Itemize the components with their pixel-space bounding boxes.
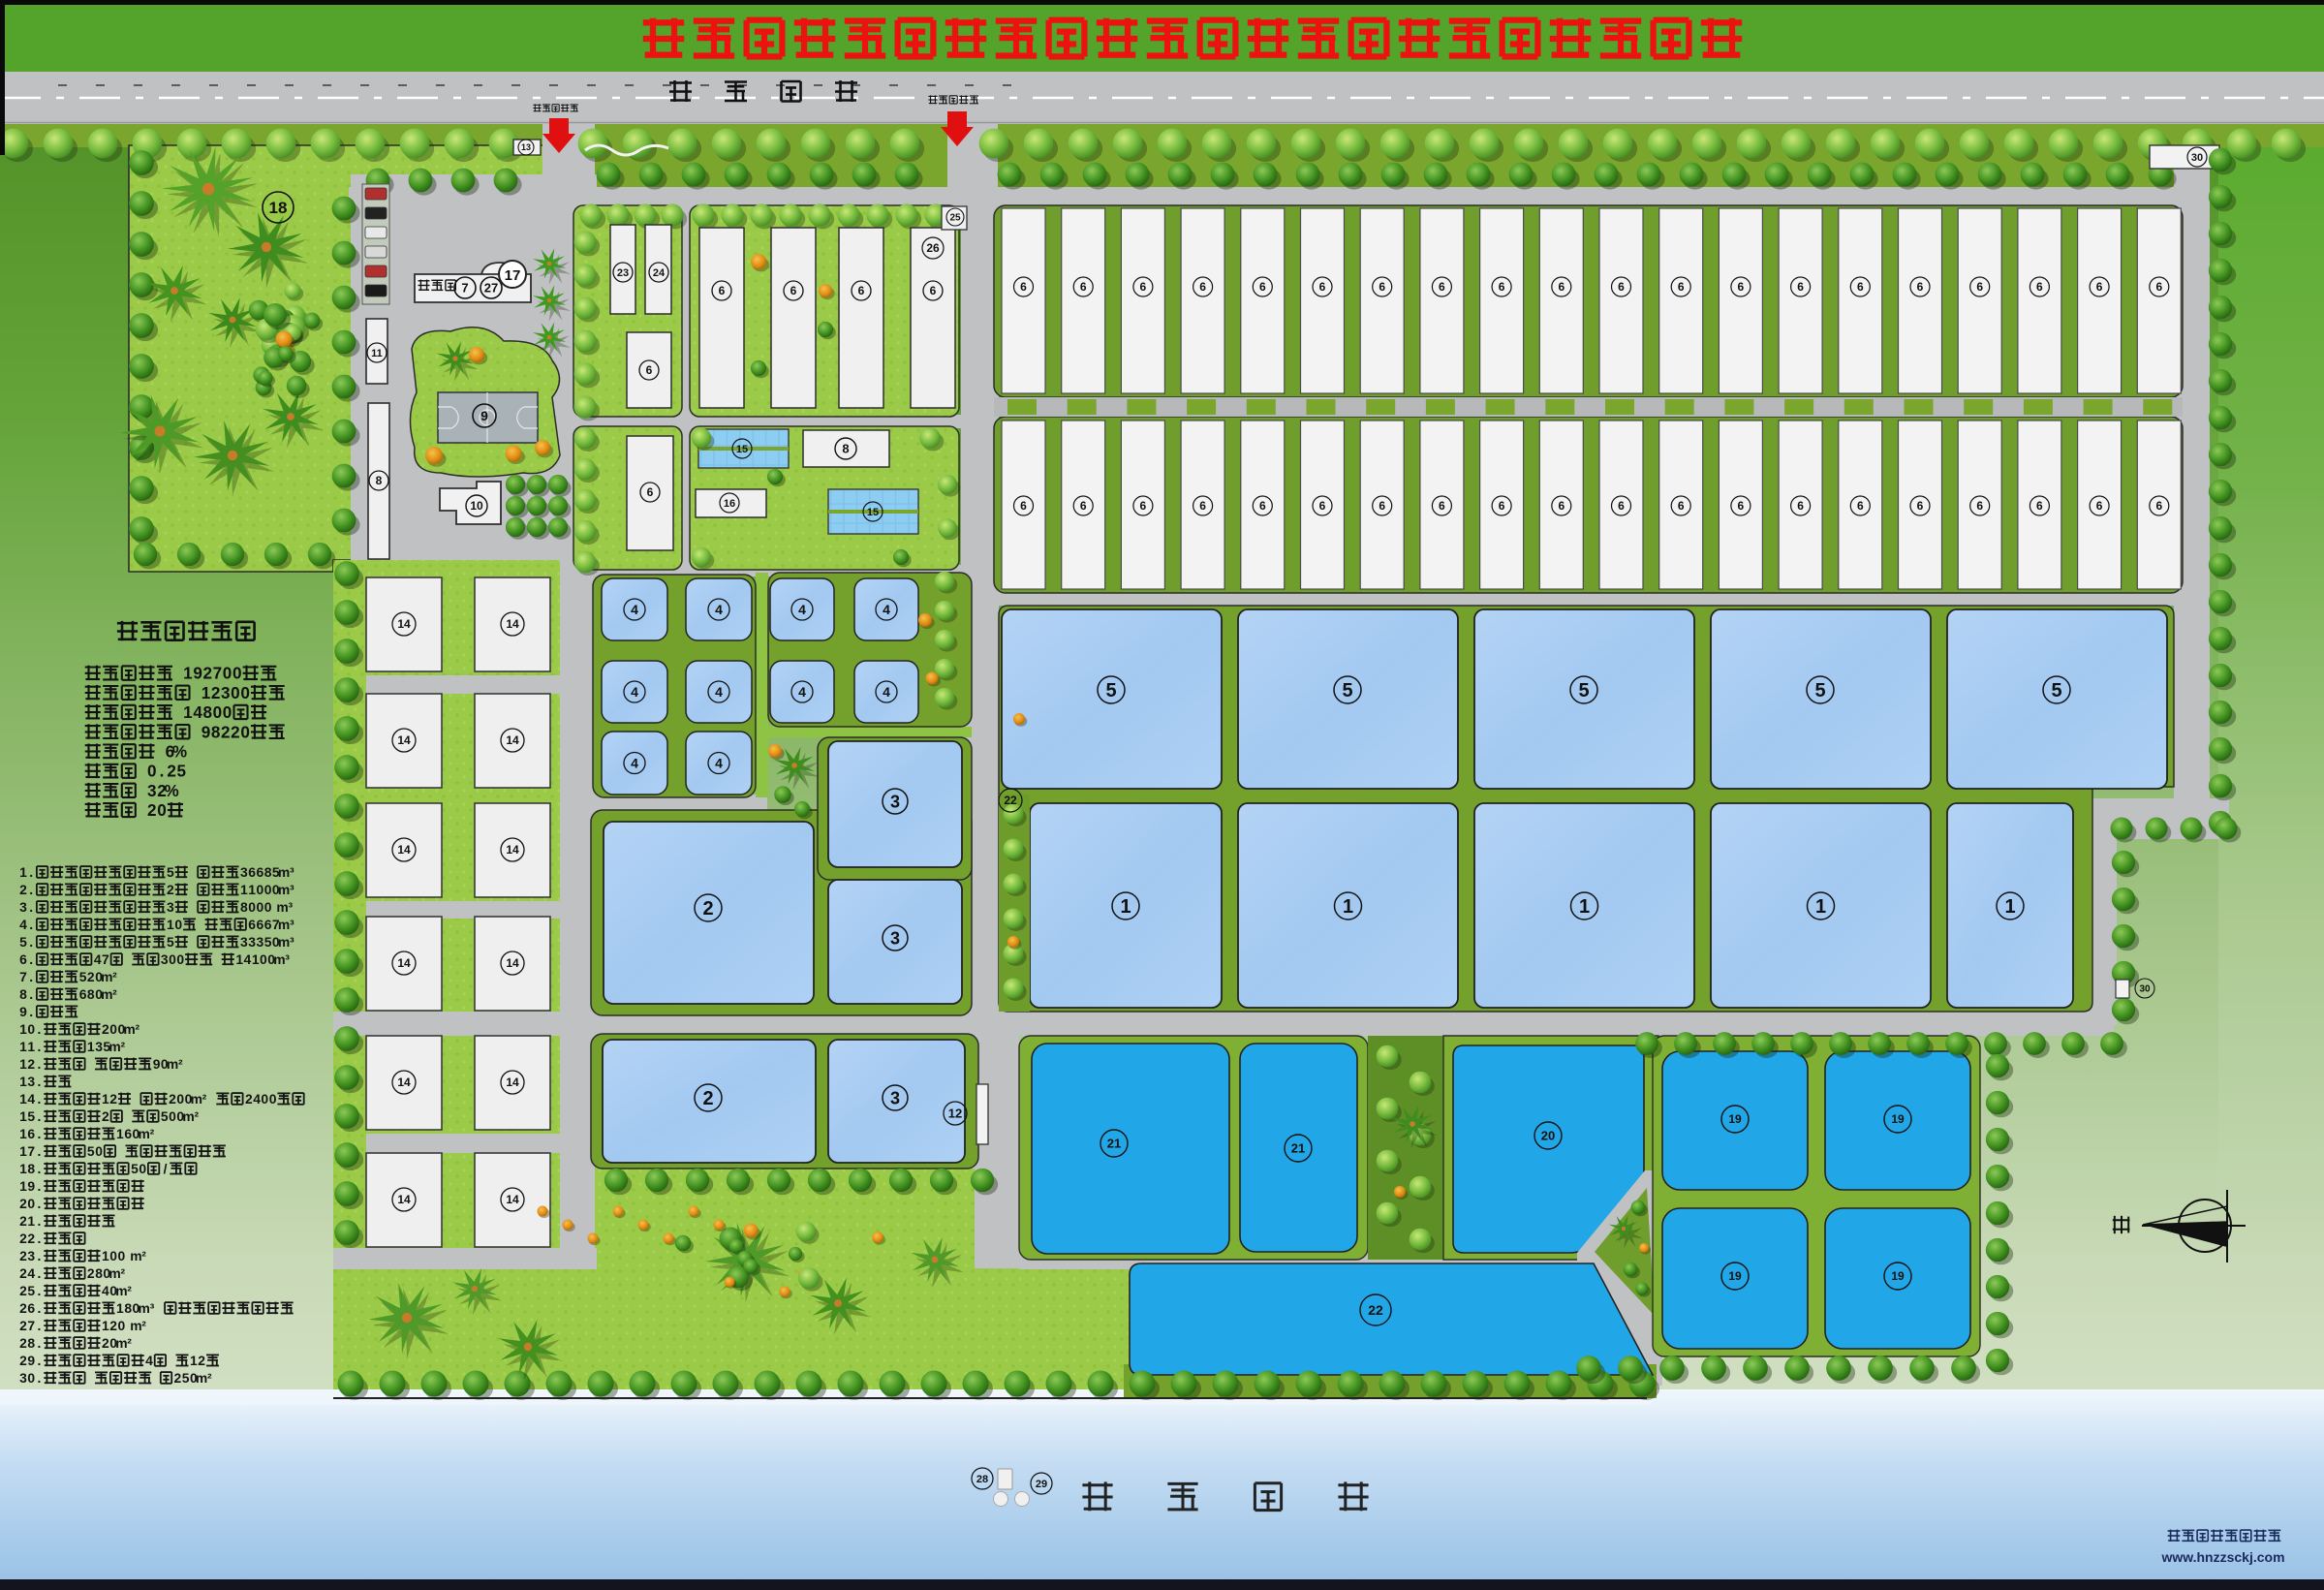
svg-text:%: % (172, 743, 187, 762)
svg-text:5: 5 (87, 1143, 95, 1159)
svg-text:.: . (29, 917, 33, 932)
svg-text:.: . (37, 1074, 41, 1089)
svg-text:5: 5 (1342, 680, 1352, 701)
svg-text:1: 1 (27, 1039, 35, 1054)
svg-text:19: 19 (1728, 1112, 1742, 1126)
svg-text:8: 8 (124, 1300, 132, 1316)
svg-text:6: 6 (1797, 280, 1804, 294)
svg-text:6: 6 (1618, 280, 1625, 294)
svg-text:0: 0 (95, 1143, 103, 1159)
svg-text:0: 0 (257, 899, 264, 915)
svg-text:2: 2 (202, 665, 212, 683)
svg-text:6: 6 (257, 864, 264, 880)
svg-text:23: 23 (617, 267, 629, 279)
svg-text:4: 4 (193, 703, 202, 722)
svg-text:6: 6 (1976, 499, 1983, 513)
svg-text:7: 7 (461, 281, 468, 296)
svg-text:0: 0 (27, 1370, 35, 1386)
svg-text:5: 5 (167, 934, 174, 950)
svg-text:3: 3 (95, 1039, 103, 1054)
svg-text:6: 6 (646, 363, 653, 377)
svg-text:6: 6 (1020, 280, 1027, 294)
svg-text:8: 8 (27, 1335, 35, 1351)
svg-text:2: 2 (102, 1021, 109, 1037)
svg-text:14: 14 (506, 1076, 519, 1089)
svg-text:²: ² (112, 986, 117, 1002)
svg-text:³: ³ (290, 882, 294, 897)
svg-text:²: ² (178, 1056, 183, 1072)
svg-text:²: ² (135, 1021, 139, 1037)
svg-text:25: 25 (949, 213, 961, 224)
svg-text:2: 2 (169, 1091, 176, 1107)
svg-text:5: 5 (1814, 680, 1825, 701)
svg-text:2: 2 (19, 1248, 27, 1263)
svg-text:4: 4 (27, 1265, 35, 1281)
svg-text:1: 1 (102, 1248, 109, 1263)
svg-text:m: m (101, 969, 112, 984)
svg-text:1: 1 (190, 1353, 198, 1368)
svg-text:28: 28 (976, 1474, 988, 1485)
svg-text:2: 2 (167, 882, 174, 897)
svg-text:6: 6 (1678, 280, 1685, 294)
svg-text:3: 3 (27, 1248, 35, 1263)
svg-text:2: 2 (19, 882, 27, 897)
svg-text:4: 4 (145, 1353, 153, 1368)
svg-text:4: 4 (94, 951, 102, 967)
svg-text:0: 0 (169, 1108, 176, 1124)
svg-text:3: 3 (890, 1088, 900, 1107)
svg-text:2: 2 (19, 1283, 27, 1298)
svg-text:8: 8 (376, 474, 383, 487)
svg-text:2: 2 (27, 1056, 35, 1072)
svg-text:3: 3 (248, 934, 256, 950)
svg-text:15: 15 (736, 444, 748, 455)
svg-text:4: 4 (798, 602, 806, 617)
svg-text:1: 1 (183, 703, 193, 722)
svg-text:4: 4 (102, 1283, 109, 1298)
svg-text:8: 8 (842, 442, 849, 456)
svg-text:.: . (37, 1283, 41, 1298)
svg-text:12: 12 (948, 1107, 962, 1121)
svg-text:14: 14 (397, 956, 411, 970)
svg-text:m: m (115, 1335, 127, 1351)
svg-text:4: 4 (883, 684, 890, 700)
svg-text:6: 6 (1379, 499, 1385, 513)
svg-text:³: ³ (285, 951, 290, 967)
svg-text:m: m (182, 1108, 194, 1124)
svg-text:0: 0 (176, 951, 184, 967)
svg-text:6: 6 (1558, 280, 1565, 294)
svg-text:.: . (37, 1213, 41, 1229)
svg-text:m: m (115, 1283, 127, 1298)
svg-text:9: 9 (27, 1178, 35, 1194)
svg-text:2: 2 (19, 1213, 27, 1229)
svg-text:6: 6 (2036, 499, 2043, 513)
svg-text:6: 6 (647, 485, 654, 499)
svg-text:6: 6 (2155, 499, 2162, 513)
svg-text:²: ² (120, 1265, 125, 1281)
svg-text:29: 29 (1036, 1479, 1047, 1490)
svg-text:m: m (196, 1370, 207, 1386)
svg-text:0: 0 (109, 1021, 117, 1037)
svg-text:14: 14 (506, 843, 519, 857)
svg-text:m: m (139, 1300, 150, 1316)
svg-text:22: 22 (1004, 794, 1017, 807)
svg-text:2: 2 (198, 1353, 205, 1368)
svg-text:0: 0 (213, 703, 223, 722)
svg-text:2: 2 (167, 763, 176, 781)
svg-text:7: 7 (19, 969, 27, 984)
svg-text:14: 14 (506, 617, 519, 631)
svg-text:5: 5 (1105, 680, 1116, 701)
svg-text:2: 2 (221, 723, 231, 741)
svg-text:2: 2 (245, 1091, 253, 1107)
svg-text:.: . (37, 1143, 41, 1159)
svg-text:6: 6 (1199, 280, 1206, 294)
svg-text:m: m (108, 1039, 120, 1054)
svg-text:14: 14 (397, 733, 411, 747)
svg-text:²: ² (112, 969, 117, 984)
svg-text:.: . (37, 1335, 41, 1351)
svg-text:7: 7 (27, 1143, 35, 1159)
svg-text:²: ² (207, 1370, 212, 1386)
svg-text:.: . (29, 986, 33, 1002)
svg-text:2: 2 (19, 1335, 27, 1351)
svg-text:m: m (123, 1021, 135, 1037)
svg-text:6: 6 (1020, 499, 1027, 513)
svg-text:0: 0 (176, 1091, 184, 1107)
svg-text:4: 4 (631, 684, 638, 700)
svg-text:m: m (101, 986, 112, 1002)
svg-text:18: 18 (269, 199, 288, 217)
svg-text:m: m (139, 1126, 150, 1141)
svg-text:0: 0 (109, 1248, 117, 1263)
svg-text:³: ³ (290, 917, 294, 932)
svg-text:8: 8 (87, 986, 95, 1002)
svg-text:0: 0 (261, 1091, 268, 1107)
svg-text:4: 4 (798, 684, 806, 700)
svg-text:15: 15 (867, 507, 879, 518)
svg-text:.: . (160, 763, 165, 781)
svg-text:2: 2 (702, 898, 713, 920)
svg-text:0: 0 (264, 882, 272, 897)
svg-text:²: ² (202, 1091, 207, 1107)
svg-text:13: 13 (521, 142, 531, 152)
svg-text:14: 14 (397, 617, 411, 631)
svg-text:2: 2 (174, 1370, 182, 1386)
svg-text:6: 6 (1618, 499, 1625, 513)
svg-text:1: 1 (27, 1213, 35, 1229)
svg-text:6: 6 (2096, 499, 2103, 513)
svg-text:2: 2 (19, 1196, 27, 1211)
svg-text:5: 5 (131, 1161, 139, 1176)
svg-text:6: 6 (719, 284, 726, 297)
svg-text:/: / (164, 1161, 168, 1176)
svg-text:3: 3 (167, 899, 174, 915)
svg-text:0: 0 (27, 1196, 35, 1211)
svg-text:1: 1 (19, 1039, 27, 1054)
svg-text:5: 5 (264, 934, 272, 950)
svg-text:8: 8 (19, 986, 27, 1002)
svg-text:0: 0 (118, 1318, 126, 1333)
svg-text:0: 0 (139, 1161, 146, 1176)
svg-text:2: 2 (19, 1300, 27, 1316)
svg-text:22: 22 (1368, 1302, 1383, 1318)
svg-text:7: 7 (213, 665, 223, 683)
svg-text:1: 1 (19, 1126, 27, 1141)
svg-text:6: 6 (790, 284, 797, 297)
svg-text:³: ³ (290, 934, 294, 950)
svg-text:2: 2 (109, 1091, 117, 1107)
svg-text:.: . (37, 1178, 41, 1194)
svg-text:.: . (37, 1248, 41, 1263)
svg-text:2: 2 (87, 969, 95, 984)
svg-text:.: . (29, 899, 33, 915)
svg-text:2: 2 (19, 1318, 27, 1333)
svg-text:m: m (167, 1056, 178, 1072)
svg-text:6: 6 (248, 917, 256, 932)
svg-text:2: 2 (702, 1088, 713, 1109)
svg-text:6: 6 (2096, 280, 2103, 294)
svg-text:6: 6 (248, 864, 256, 880)
svg-text:19: 19 (1728, 1269, 1742, 1283)
svg-text:m: m (278, 864, 290, 880)
svg-text:0: 0 (223, 703, 232, 722)
svg-text:6: 6 (1140, 280, 1147, 294)
svg-text:14: 14 (397, 1076, 411, 1089)
svg-text:²: ² (127, 1283, 132, 1298)
svg-text:6: 6 (27, 1300, 35, 1316)
svg-text:3: 3 (19, 1370, 27, 1386)
svg-text:6: 6 (1738, 499, 1745, 513)
svg-text:m: m (278, 934, 290, 950)
svg-text:27: 27 (484, 281, 498, 296)
svg-text:20: 20 (1541, 1129, 1555, 1143)
svg-text:0: 0 (232, 665, 242, 683)
svg-text:%: % (164, 782, 178, 800)
svg-text:1: 1 (1815, 896, 1826, 918)
svg-text:2: 2 (27, 1231, 35, 1246)
svg-text:14: 14 (506, 956, 519, 970)
svg-text:6: 6 (124, 1126, 132, 1141)
svg-text:3: 3 (240, 934, 248, 950)
svg-text:5: 5 (182, 1370, 190, 1386)
svg-text:6: 6 (1199, 499, 1206, 513)
svg-text:²: ² (194, 1108, 199, 1124)
svg-text:5: 5 (27, 1108, 35, 1124)
svg-text:11: 11 (371, 348, 383, 359)
svg-text:6: 6 (2155, 280, 2162, 294)
svg-text:.: . (37, 1091, 41, 1107)
svg-text:3: 3 (147, 782, 157, 800)
svg-text:m: m (278, 917, 290, 932)
svg-text:6: 6 (1976, 280, 1983, 294)
svg-text:21: 21 (1291, 1141, 1305, 1156)
svg-text:1: 1 (1579, 896, 1590, 918)
svg-text:6: 6 (1797, 499, 1804, 513)
svg-text:.: . (37, 1039, 41, 1054)
svg-text:1: 1 (248, 882, 256, 897)
svg-text:m: m (278, 882, 290, 897)
svg-text:.: . (37, 1056, 41, 1072)
svg-text:m: m (130, 1248, 141, 1263)
svg-text:6: 6 (1857, 280, 1864, 294)
svg-text:1: 1 (19, 864, 27, 880)
svg-text:.: . (37, 1196, 41, 1211)
svg-text:1: 1 (19, 1161, 27, 1176)
svg-text:4: 4 (19, 917, 27, 932)
svg-text:0: 0 (169, 951, 176, 967)
svg-text:2: 2 (19, 1265, 27, 1281)
svg-text:.: . (29, 969, 33, 984)
svg-text:10: 10 (470, 499, 483, 513)
svg-text:3: 3 (890, 928, 900, 948)
svg-text:6: 6 (1917, 280, 1924, 294)
svg-text:6: 6 (1319, 499, 1326, 513)
svg-text:²: ² (127, 1335, 132, 1351)
svg-text:.: . (29, 951, 33, 967)
svg-text:3: 3 (19, 899, 27, 915)
svg-text:0: 0 (240, 684, 250, 702)
svg-text:³: ³ (290, 864, 294, 880)
svg-text:4: 4 (883, 602, 890, 617)
svg-text:6: 6 (1080, 280, 1087, 294)
svg-text:3: 3 (27, 1074, 35, 1089)
svg-text:6: 6 (1499, 499, 1505, 513)
svg-text:4: 4 (27, 1091, 35, 1107)
svg-text:.: . (37, 1161, 41, 1176)
svg-text:0: 0 (223, 665, 232, 683)
svg-text:.: . (37, 1021, 41, 1037)
svg-text:6: 6 (79, 986, 87, 1002)
svg-text:www.hnzzsckj.com: www.hnzzsckj.com (2160, 1549, 2284, 1565)
svg-text:0: 0 (27, 1021, 35, 1037)
svg-text:19: 19 (1891, 1112, 1905, 1126)
svg-text:14: 14 (506, 733, 519, 747)
svg-text:1: 1 (19, 1056, 27, 1072)
svg-text:5: 5 (161, 1108, 169, 1124)
svg-text:1: 1 (252, 951, 260, 967)
svg-text:5: 5 (79, 969, 87, 984)
svg-text:1: 1 (1120, 896, 1131, 918)
svg-text:m: m (130, 1318, 141, 1333)
svg-text:0: 0 (174, 917, 182, 932)
svg-text:1: 1 (183, 665, 193, 683)
svg-text:.: . (29, 1004, 33, 1019)
svg-text:1: 1 (19, 1074, 27, 1089)
svg-text:.: . (37, 1370, 41, 1386)
svg-text:.: . (37, 1108, 41, 1124)
svg-text:.: . (37, 1231, 41, 1246)
svg-text:0: 0 (264, 899, 272, 915)
svg-text:6: 6 (858, 284, 865, 297)
svg-text:21: 21 (1107, 1137, 1121, 1151)
svg-text:30: 30 (2191, 152, 2203, 164)
svg-text:2: 2 (231, 723, 240, 741)
svg-text:8: 8 (240, 899, 248, 915)
svg-text:2: 2 (19, 1353, 27, 1368)
svg-text:²: ² (150, 1126, 155, 1141)
svg-text:.: . (37, 1318, 41, 1333)
svg-text:0: 0 (231, 684, 240, 702)
svg-text:1: 1 (1343, 896, 1353, 918)
svg-text:1: 1 (19, 1021, 27, 1037)
svg-text:14: 14 (397, 843, 411, 857)
svg-text:8: 8 (95, 1265, 103, 1281)
svg-text:24: 24 (653, 267, 666, 279)
svg-text:1: 1 (102, 1318, 109, 1333)
svg-text:6: 6 (1439, 280, 1445, 294)
svg-text:2: 2 (102, 1108, 109, 1124)
svg-text:6: 6 (2036, 280, 2043, 294)
svg-text:6: 6 (27, 1126, 35, 1141)
svg-text:7: 7 (102, 951, 109, 967)
svg-text:8: 8 (27, 1161, 35, 1176)
svg-text:3: 3 (161, 951, 169, 967)
svg-text:9: 9 (201, 723, 211, 741)
svg-text:9: 9 (153, 1056, 161, 1072)
svg-text:0: 0 (269, 1091, 277, 1107)
svg-text:.: . (29, 882, 33, 897)
svg-text:1: 1 (116, 1126, 124, 1141)
svg-text:2: 2 (109, 1318, 117, 1333)
svg-text:30: 30 (2139, 984, 2151, 995)
svg-text:17: 17 (505, 267, 521, 284)
svg-text:9: 9 (480, 408, 488, 423)
svg-text:6: 6 (1558, 499, 1565, 513)
svg-text:²: ² (141, 1248, 146, 1263)
svg-text:0: 0 (257, 882, 264, 897)
svg-text:2: 2 (147, 801, 157, 820)
svg-text:4: 4 (253, 1091, 261, 1107)
svg-text:6: 6 (1379, 280, 1385, 294)
svg-text:14: 14 (506, 1193, 519, 1206)
svg-text:1: 1 (235, 951, 243, 967)
svg-text:4: 4 (631, 602, 638, 617)
svg-text:1: 1 (19, 1143, 27, 1159)
svg-text:5: 5 (2051, 680, 2061, 701)
svg-text:m: m (273, 951, 285, 967)
svg-text:1: 1 (19, 1091, 27, 1107)
svg-text:6: 6 (1140, 499, 1147, 513)
svg-text:³: ³ (150, 1300, 155, 1316)
svg-text:4: 4 (715, 602, 723, 617)
svg-text:6: 6 (930, 284, 937, 297)
svg-text:6: 6 (1439, 499, 1445, 513)
svg-text:26: 26 (926, 241, 940, 255)
svg-text:6: 6 (1259, 499, 1266, 513)
svg-text:5: 5 (1578, 680, 1589, 701)
svg-text:0: 0 (240, 723, 250, 741)
svg-text:4: 4 (244, 951, 252, 967)
svg-text:²: ² (120, 1039, 125, 1054)
svg-text:²: ² (141, 1318, 146, 1333)
svg-text:3: 3 (257, 934, 264, 950)
svg-text:.: . (29, 934, 33, 950)
svg-text:6: 6 (257, 917, 264, 932)
svg-text:³: ³ (288, 899, 293, 915)
svg-text:1: 1 (19, 1108, 27, 1124)
svg-text:6: 6 (1319, 280, 1326, 294)
svg-text:4: 4 (715, 755, 723, 770)
svg-text:3: 3 (221, 684, 231, 702)
svg-text:6: 6 (1259, 280, 1266, 294)
svg-text:2: 2 (211, 684, 221, 702)
svg-text:m: m (108, 1265, 120, 1281)
svg-text:8: 8 (211, 723, 221, 741)
svg-text:3: 3 (240, 864, 248, 880)
svg-text:16: 16 (724, 498, 735, 510)
